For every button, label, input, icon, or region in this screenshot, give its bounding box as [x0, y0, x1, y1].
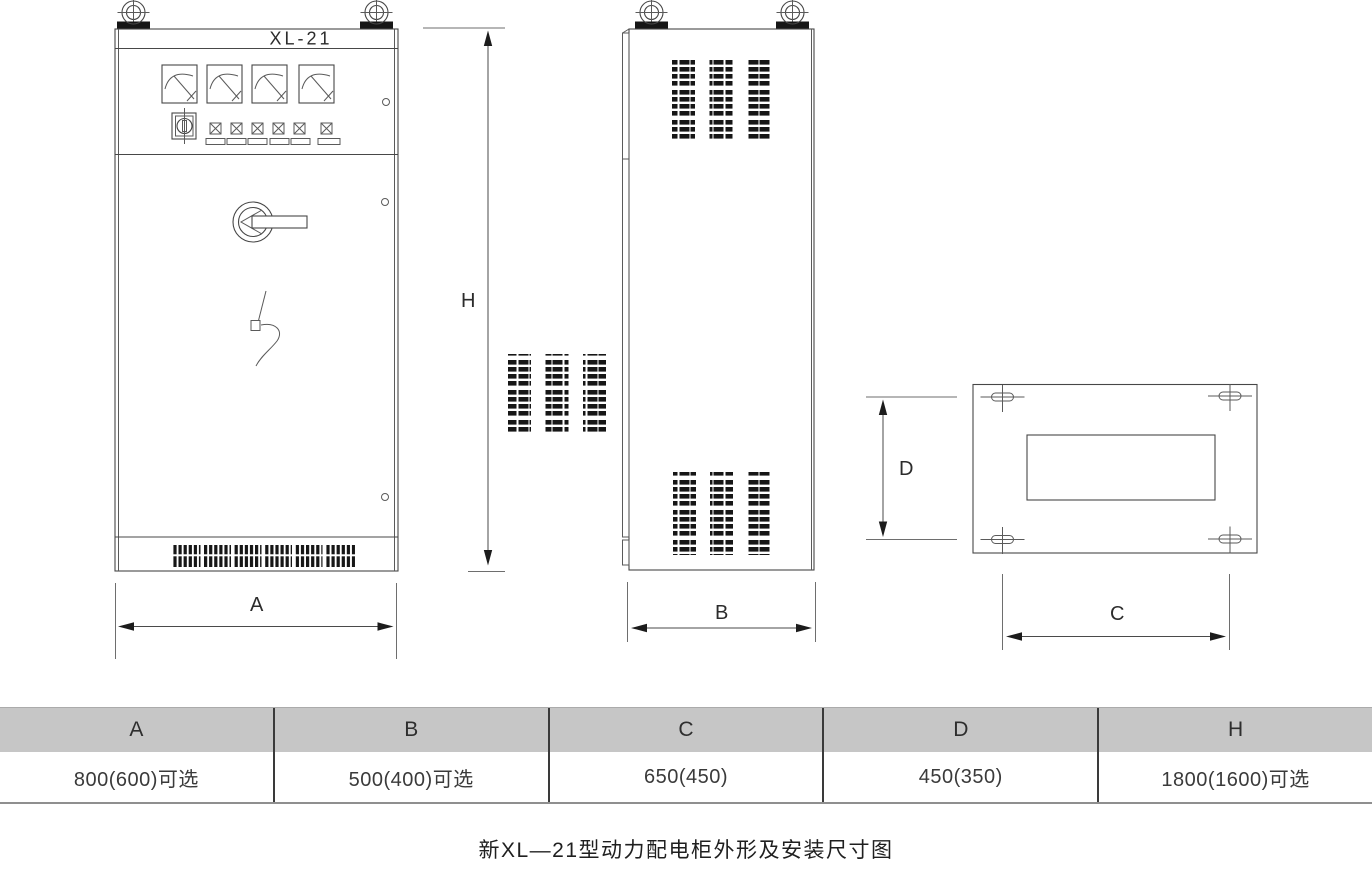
- door-edge-strip: [623, 29, 630, 565]
- dimension-A: A: [116, 583, 397, 659]
- indicator-lamp-icon: [248, 123, 267, 145]
- table-header-cell: C: [550, 708, 823, 752]
- dimension-B: B: [628, 582, 816, 642]
- indicator-lamp-icon: [270, 123, 289, 145]
- table-header-cell: B: [275, 708, 548, 752]
- door-latch-icon: [251, 291, 280, 366]
- indicator-lamp-icon: [291, 123, 310, 145]
- table-value-cell: 800(600)可选: [0, 752, 273, 802]
- cabinet-model-label: XL-21: [269, 29, 332, 49]
- side-view: [623, 0, 815, 570]
- cabinet-diagram-svg: XL-21: [0, 0, 1372, 706]
- mounting-slot-icon: [981, 385, 1025, 412]
- analog-meter-icon: [162, 65, 197, 103]
- top-view: [973, 384, 1257, 554]
- dimension-D-label: D: [899, 458, 913, 480]
- front-vent-grille: [172, 545, 355, 567]
- dimension-C-label: C: [1110, 603, 1124, 625]
- dimension-drawing-page: XL-21: [0, 0, 1372, 869]
- lifting-eye-icon: [635, 0, 668, 29]
- mounting-hole: [382, 494, 389, 501]
- table-column-B: B 500(400)可选: [273, 708, 548, 802]
- table-value-cell: 450(350): [824, 752, 1097, 802]
- table-column-C: C 650(450): [548, 708, 823, 802]
- table-column-H: H 1800(1600)可选: [1097, 708, 1372, 802]
- mounting-slot-icon: [1208, 527, 1252, 554]
- middle-louver-vent: [508, 354, 606, 433]
- dimension-H: H: [423, 28, 505, 572]
- table-value-cell: 500(400)可选: [275, 752, 548, 802]
- side-louver-vent-top: [672, 57, 770, 140]
- indicator-lamp-icon: [206, 123, 225, 145]
- side-louver-vent-bottom: [673, 472, 771, 555]
- dimension-H-label: H: [461, 290, 475, 312]
- table-column-A: A 800(600)可选: [0, 708, 273, 802]
- analog-meter-icon: [299, 65, 334, 103]
- analog-meter-icon: [207, 65, 242, 103]
- mounting-hole: [383, 99, 390, 106]
- mounting-slot-icon: [981, 527, 1025, 554]
- indicator-lamp-icon: [318, 123, 340, 145]
- base-outline: [973, 385, 1257, 554]
- lifting-eye-icon: [776, 0, 809, 29]
- dimension-table: A 800(600)可选 B 500(400)可选 C 650(450) D 4…: [0, 707, 1372, 804]
- front-view: XL-21: [115, 0, 398, 571]
- mounting-hole: [382, 199, 389, 206]
- figure-caption: 新XL—21型动力配电柜外形及安装尺寸图: [0, 834, 1372, 864]
- table-column-D: D 450(350): [822, 708, 1097, 802]
- cable-entry-opening: [1027, 435, 1215, 500]
- mounting-slot-icon: [1208, 384, 1252, 411]
- table-value-cell: 650(450): [550, 752, 823, 802]
- lifting-eye-icon: [117, 0, 150, 29]
- dimension-B-label: B: [715, 602, 728, 624]
- indicator-lamp-icon: [227, 123, 246, 145]
- table-value-cell: 1800(1600)可选: [1099, 752, 1372, 802]
- dimension-C: C: [1003, 574, 1230, 650]
- table-header-cell: D: [824, 708, 1097, 752]
- table-header-cell: A: [0, 708, 273, 752]
- key-switch-icon: [172, 108, 196, 144]
- analog-meter-icon: [252, 65, 287, 103]
- dimension-D: D: [866, 397, 957, 540]
- dimension-A-label: A: [250, 594, 264, 616]
- front-cabinet-outline: [115, 29, 398, 571]
- lifting-eye-icon: [360, 0, 393, 29]
- table-header-cell: H: [1099, 708, 1372, 752]
- operating-handle-icon: [233, 202, 307, 242]
